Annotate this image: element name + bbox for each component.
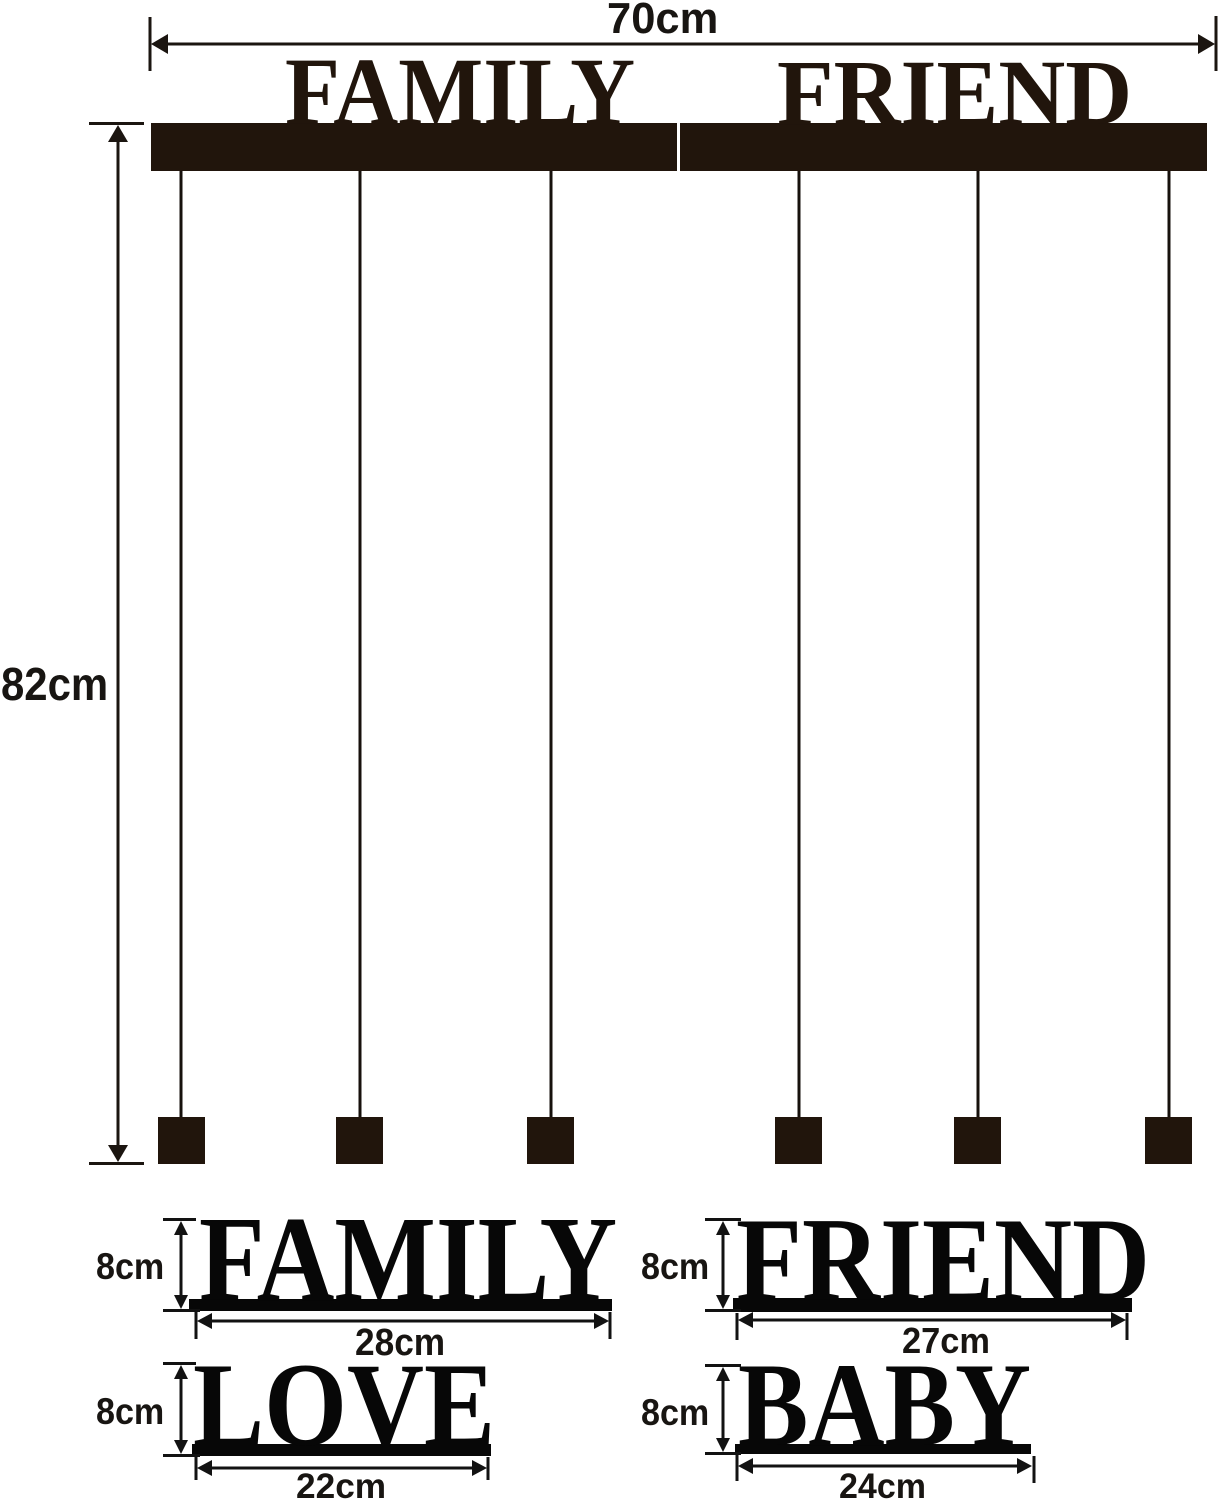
svg-text:70cm: 70cm	[607, 0, 718, 43]
svg-text:FRIEND: FRIEND	[777, 42, 1132, 145]
svg-text:8cm: 8cm	[641, 1246, 709, 1288]
svg-text:LOVE: LOVE	[193, 1338, 495, 1471]
svg-text:24cm: 24cm	[839, 1468, 926, 1500]
svg-text:FRIEND: FRIEND	[736, 1193, 1150, 1326]
svg-text:FAMILY: FAMILY	[199, 1192, 617, 1327]
svg-text:FAMILY: FAMILY	[285, 39, 635, 145]
svg-text:8cm: 8cm	[641, 1392, 709, 1434]
svg-text:82cm: 82cm	[1, 659, 108, 710]
svg-text:22cm: 22cm	[296, 1467, 386, 1500]
svg-text:8cm: 8cm	[96, 1391, 164, 1433]
svg-text:8cm: 8cm	[96, 1246, 164, 1288]
svg-text:BABY: BABY	[738, 1339, 1031, 1472]
